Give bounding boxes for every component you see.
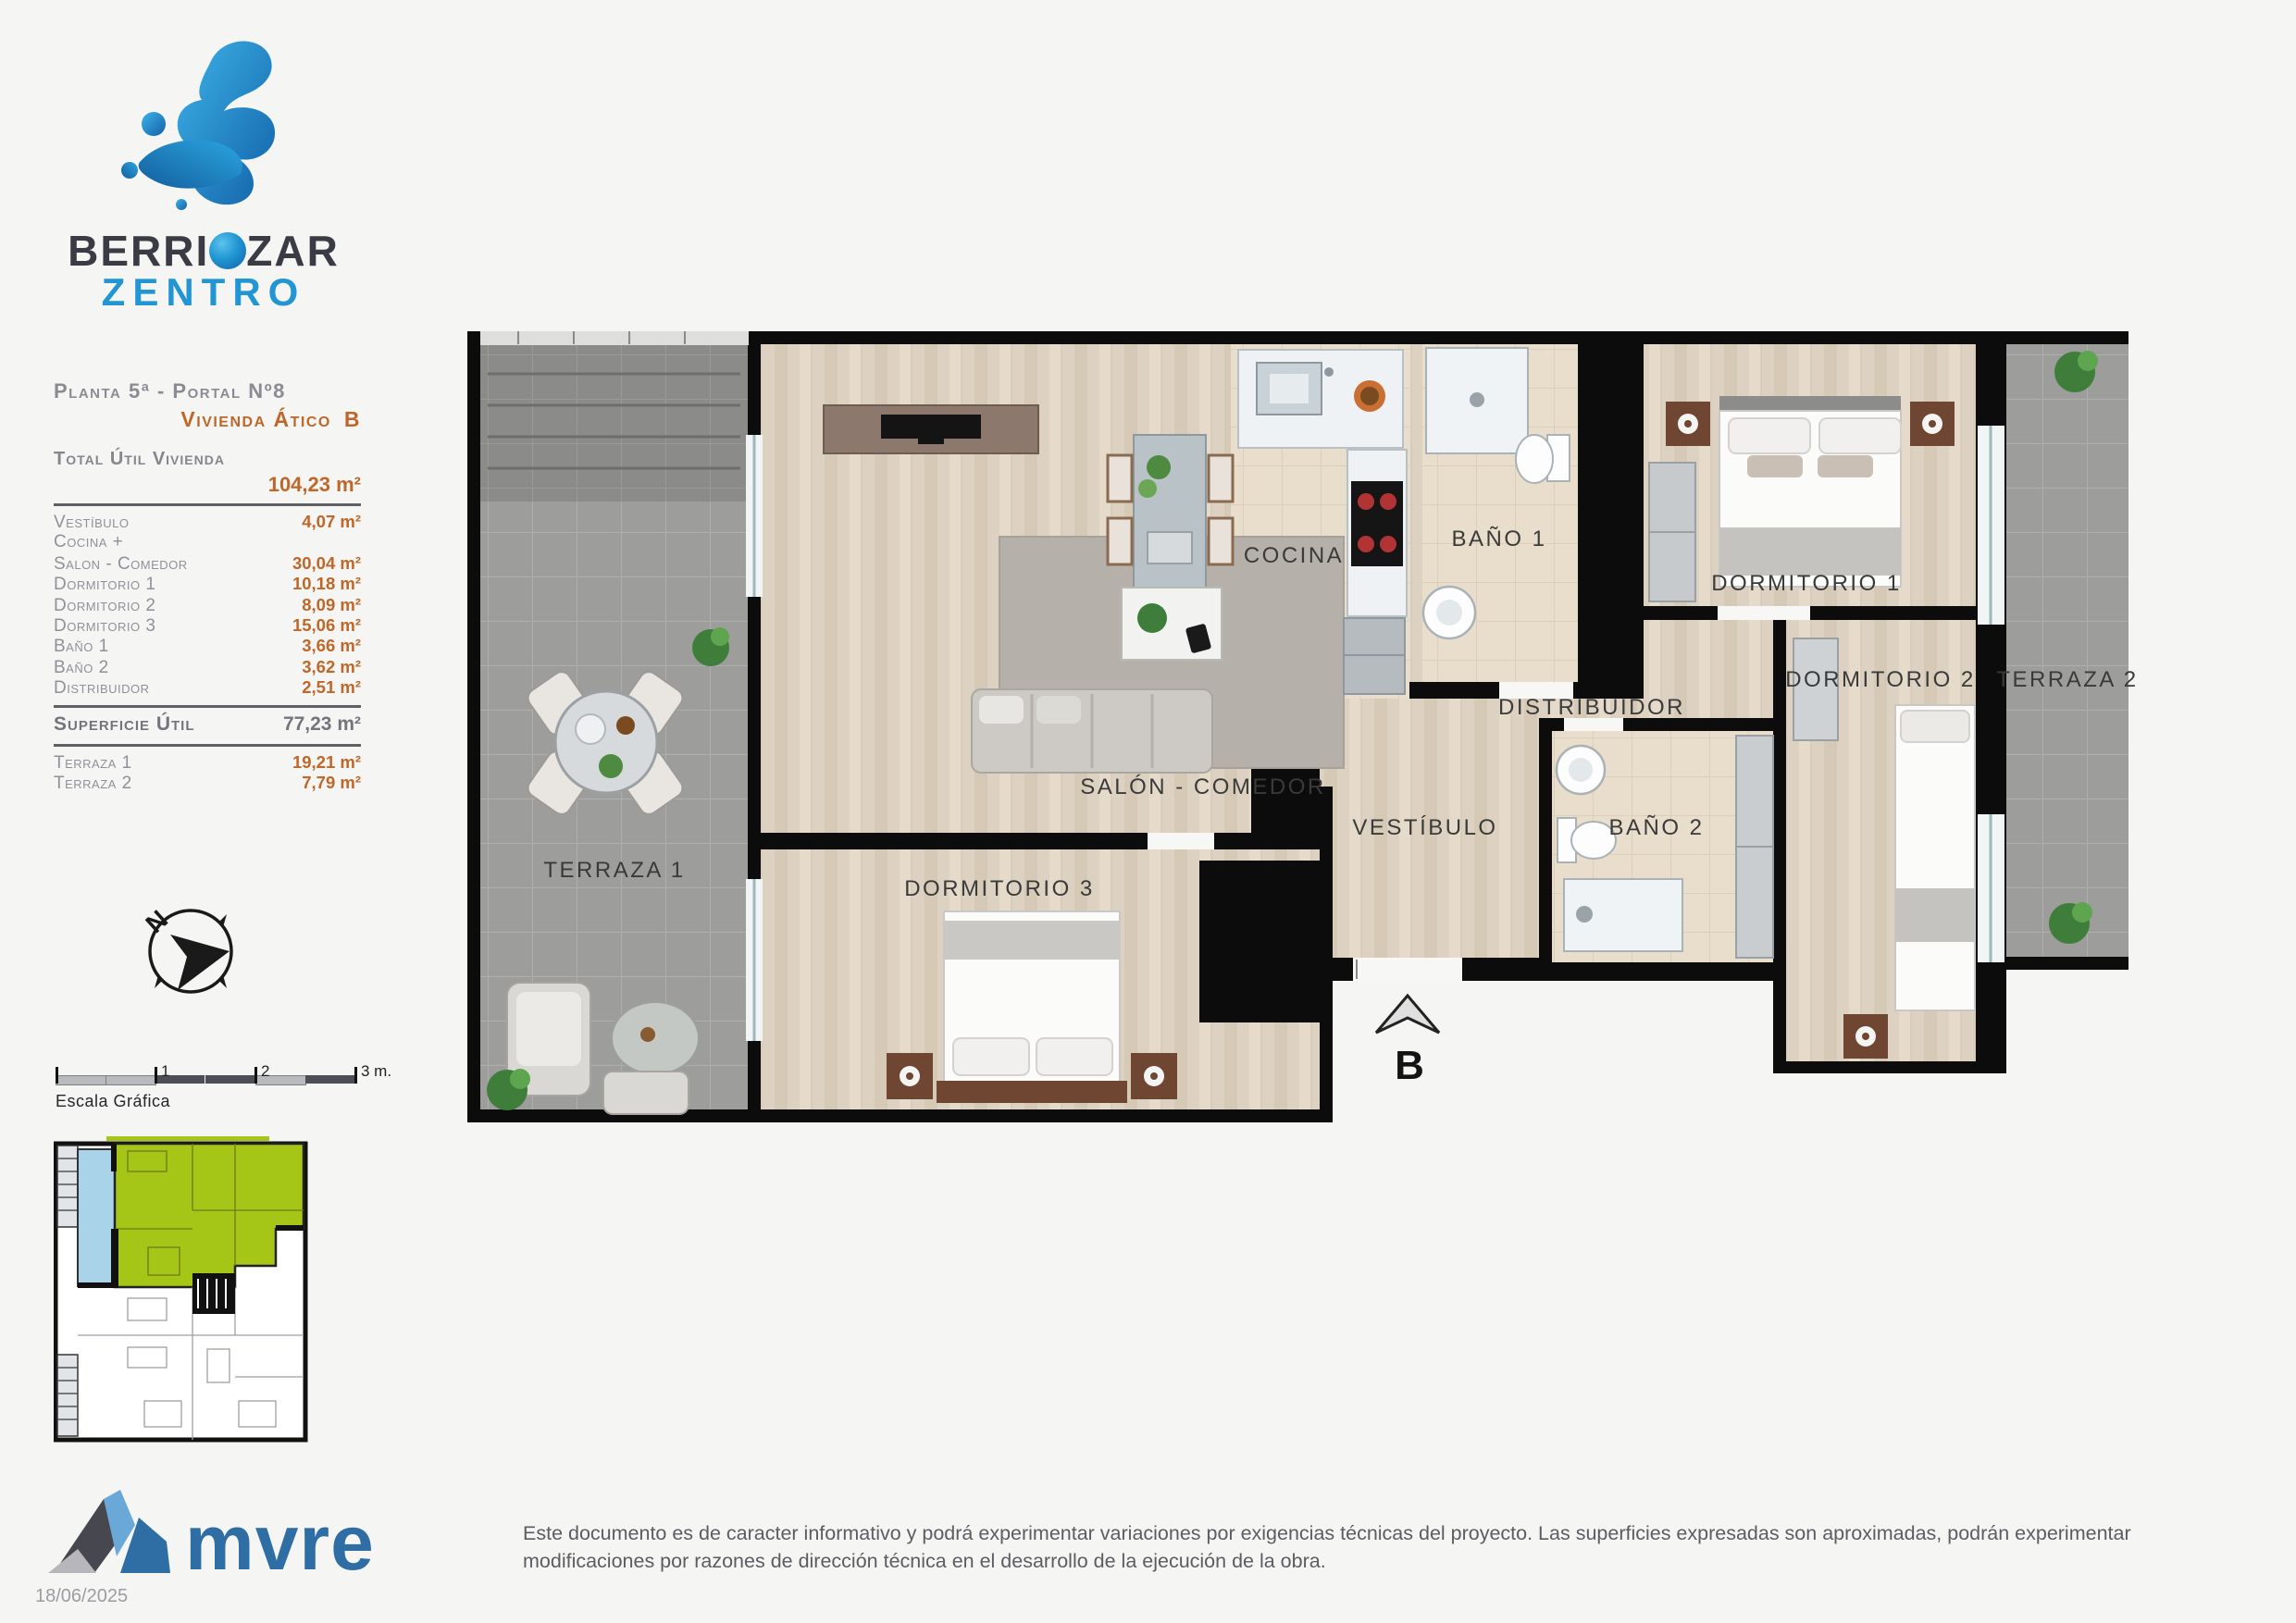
plant — [2078, 351, 2098, 371]
disclaimer-text: Este documento es de caracter informativ… — [523, 1520, 2263, 1575]
terraza1-pergola — [480, 344, 748, 502]
entrance-arrow-icon — [1376, 996, 1439, 1033]
room-label-vestibulo: VESTÍBULO — [1352, 815, 1497, 840]
room-label-dormitorio1: DORMITORIO 1 — [1711, 571, 1902, 596]
dormitorio1-bed — [1719, 396, 1901, 587]
plant — [510, 1069, 530, 1089]
corridor-floor-upper — [1644, 620, 1773, 703]
room-label-distribuidor: DISTRIBUIDOR — [1498, 695, 1685, 720]
dormitorio3-bed — [937, 911, 1127, 1103]
stair-landing — [480, 331, 749, 345]
room-label-salon: SALÓN - COMEDOR — [1080, 774, 1326, 799]
plant — [2072, 902, 2092, 923]
nightstand — [1666, 402, 1710, 446]
room-label-bano1: BAÑO 1 — [1451, 527, 1546, 551]
nightstand — [1910, 402, 1955, 446]
nightstand — [887, 1053, 933, 1099]
nightstand — [1131, 1053, 1177, 1099]
coffee-table — [1122, 588, 1222, 660]
tv — [881, 415, 981, 439]
entrance-letter: B — [1395, 1043, 1424, 1088]
tv-stand — [918, 439, 944, 444]
terraza2-floor — [2006, 344, 2128, 957]
floor-plan: TERRAZA 1 SALÓN - COMEDOR COCINA BAÑO 1 … — [0, 0, 2296, 1623]
plant — [711, 627, 729, 646]
hall-closet — [1736, 736, 1773, 958]
date-text: 18/06/2025 — [35, 1586, 128, 1607]
mvre-logo: mvre — [46, 1488, 435, 1590]
shaft-block — [1578, 344, 1644, 682]
kitchen-hob-column — [1347, 450, 1407, 616]
room-label-bano2: BAÑO 2 — [1608, 815, 1704, 840]
sofa — [972, 689, 1212, 773]
room-label-dormitorio2: DORMITORIO 2 — [1785, 667, 1976, 692]
wardrobe — [1649, 463, 1695, 601]
dormitorio2-bed — [1895, 705, 1975, 1010]
kitchen-counter — [1238, 350, 1403, 448]
vestibulo-floor — [1333, 731, 1552, 958]
room-label-dormitorio3: DORMITORIO 3 — [904, 876, 1095, 901]
mvre-logo-text: mvre — [185, 1499, 375, 1586]
room-label-cocina: COCINA — [1244, 543, 1344, 568]
room-label-terraza2: TERRAZA 2 — [1996, 667, 2138, 692]
nightstand — [1843, 1014, 1888, 1059]
room-label-terraza1: TERRAZA 1 — [543, 858, 685, 883]
